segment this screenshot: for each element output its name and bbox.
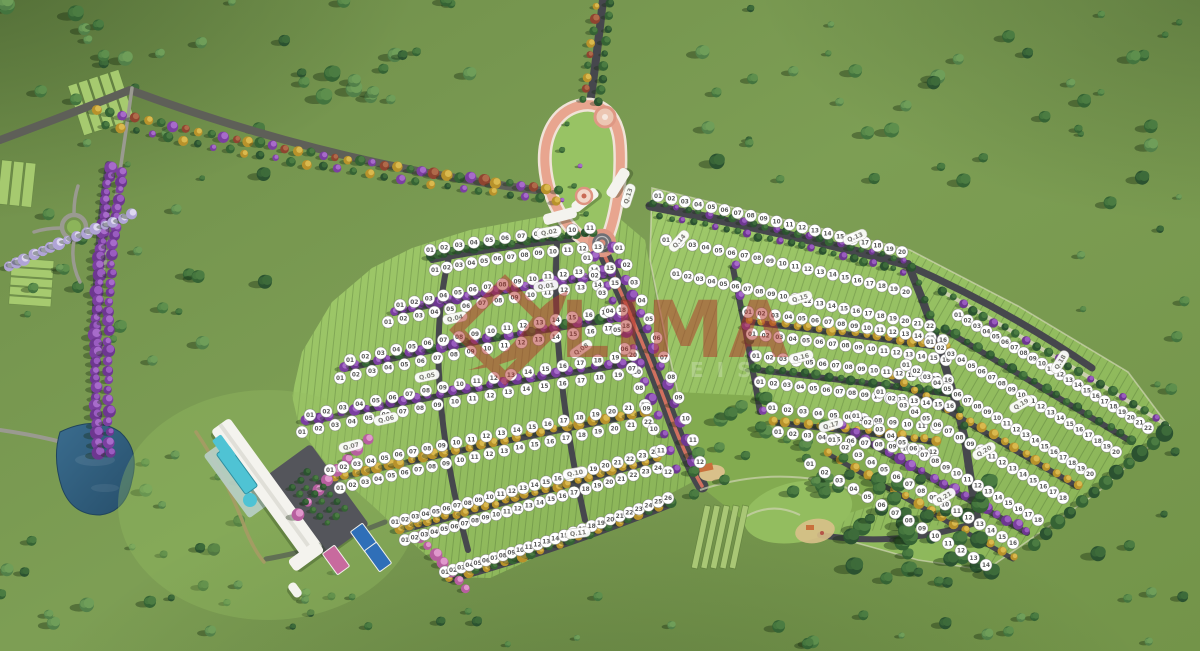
lot-badge: 10: [566, 224, 578, 236]
lot-badge: 20: [609, 422, 621, 434]
lot-badge: 10: [861, 322, 873, 334]
lot-badge: 01: [581, 252, 593, 264]
lot-badge: 02: [934, 342, 946, 354]
svg-text:03: 03: [923, 375, 931, 381]
lot-badge: 04: [346, 415, 358, 427]
svg-text:16: 16: [544, 422, 552, 428]
svg-text:08: 08: [875, 443, 883, 449]
svg-text:06: 06: [893, 475, 901, 481]
lot-badge: 15: [545, 493, 557, 505]
lot-badge: 03: [797, 406, 809, 418]
lot-badge: 15: [932, 398, 944, 410]
svg-text:01: 01: [902, 363, 910, 369]
svg-text:07: 07: [433, 356, 441, 362]
svg-text:05: 05: [898, 440, 906, 446]
lot-badge: 09: [848, 320, 860, 332]
lot-badge: 01: [304, 409, 316, 421]
lot-badge: 03: [453, 239, 465, 251]
lot-badge: 06: [725, 247, 737, 259]
lot-badge: 06: [440, 502, 452, 514]
svg-text:10: 10: [452, 440, 460, 446]
lot-badge: 10: [901, 418, 913, 430]
lot-badge: 06: [719, 204, 731, 216]
svg-text:06: 06: [720, 208, 728, 214]
svg-text:18: 18: [1068, 461, 1076, 467]
lot-badge: 06: [393, 449, 405, 461]
svg-text:20: 20: [901, 319, 909, 325]
svg-text:10: 10: [487, 329, 495, 335]
svg-text:01: 01: [346, 358, 354, 364]
lot-badge: 12: [662, 466, 674, 478]
lot-badge: 08: [903, 515, 915, 527]
svg-text:25: 25: [654, 500, 662, 506]
lot-badge: 05: [385, 470, 397, 482]
svg-text:05: 05: [454, 291, 462, 297]
lot-badge: 13: [1007, 462, 1019, 474]
lot-badge: 04: [909, 406, 921, 418]
svg-text:11: 11: [876, 328, 884, 334]
lot-badge: 10: [454, 378, 466, 390]
svg-text:16: 16: [1075, 428, 1083, 434]
lot-badge: 20: [896, 246, 908, 258]
svg-text:06: 06: [501, 236, 509, 242]
lot-badge: 11: [789, 260, 801, 272]
svg-text:07: 07: [734, 211, 742, 217]
lot-badge: 06: [499, 232, 511, 244]
swimming-pool: [243, 493, 257, 507]
lot-badge: 10: [951, 468, 963, 480]
svg-text:03: 03: [377, 351, 385, 357]
lot-badge: 03: [453, 259, 465, 271]
svg-text:05: 05: [806, 360, 814, 366]
lot-badge: 12: [483, 448, 495, 460]
svg-text:13: 13: [1022, 433, 1030, 439]
lot-badge: 05: [379, 452, 391, 464]
svg-text:01: 01: [828, 438, 836, 444]
lot-badge: 10: [648, 423, 660, 435]
lot-badge: 11: [961, 474, 973, 486]
svg-text:03: 03: [368, 369, 376, 375]
svg-text:16: 16: [559, 381, 567, 387]
svg-text:06: 06: [423, 341, 431, 347]
lot-badge: 15: [540, 476, 552, 488]
svg-text:01: 01: [806, 462, 814, 468]
road-spoke-n: [74, 186, 78, 213]
lot-badge: 01: [382, 316, 394, 328]
svg-text:16: 16: [852, 309, 860, 315]
lot-badge: 12: [484, 389, 496, 401]
svg-text:10: 10: [486, 495, 494, 501]
svg-text:04: 04: [814, 411, 822, 417]
lot-badge: 11: [465, 433, 477, 445]
lot-badge: 08: [518, 249, 530, 261]
svg-text:07: 07: [861, 441, 869, 447]
lot-badge: 14: [826, 300, 838, 312]
svg-text:13: 13: [594, 245, 602, 251]
svg-text:12: 12: [998, 460, 1006, 466]
lot-badge: 01: [424, 244, 436, 256]
svg-text:13: 13: [542, 539, 550, 545]
svg-text:06: 06: [978, 370, 986, 376]
lot-badge: 07: [431, 352, 443, 364]
svg-text:13: 13: [1047, 410, 1055, 416]
svg-text:14: 14: [1056, 416, 1064, 422]
svg-text:18: 18: [596, 376, 604, 382]
lot-badge: 14: [985, 525, 997, 537]
lot-badge: 22: [627, 469, 639, 481]
lot-badge: 01: [344, 354, 356, 366]
svg-text:11: 11: [503, 326, 511, 332]
lot-badge: 03: [686, 239, 698, 251]
svg-text:01: 01: [426, 248, 434, 254]
lot-badge: 11: [874, 324, 886, 336]
lot-badge: 17: [862, 308, 874, 320]
svg-text:07: 07: [824, 320, 832, 326]
lot-badge: 05: [483, 234, 495, 246]
lot-badge: 05: [363, 412, 375, 424]
lot-badge: 04: [885, 430, 897, 442]
lot-badge: 03: [802, 430, 814, 442]
svg-text:08: 08: [848, 391, 856, 397]
svg-text:06: 06: [493, 257, 501, 263]
svg-text:12: 12: [482, 434, 490, 440]
svg-text:04: 04: [384, 366, 392, 372]
svg-text:10: 10: [456, 382, 464, 388]
svg-text:09: 09: [438, 443, 446, 449]
lot-badge: 08: [840, 340, 852, 352]
svg-text:03: 03: [420, 533, 428, 539]
svg-text:09: 09: [674, 396, 682, 402]
lot-badge: 01: [900, 359, 912, 371]
svg-text:04: 04: [355, 402, 363, 408]
svg-text:09: 09: [942, 465, 950, 471]
svg-text:16: 16: [853, 278, 861, 284]
svg-text:07: 07: [399, 409, 407, 415]
lot-badge: 20: [599, 460, 611, 472]
svg-text:19: 19: [889, 317, 897, 323]
lot-badge: 10: [865, 343, 877, 355]
lot-badge: 07: [889, 507, 901, 519]
svg-text:05: 05: [922, 416, 930, 422]
svg-text:11: 11: [880, 349, 888, 355]
svg-text:07: 07: [439, 338, 447, 344]
svg-text:14: 14: [982, 563, 990, 569]
lot-badge: 05: [920, 412, 932, 424]
svg-text:18: 18: [578, 433, 586, 439]
svg-text:14: 14: [824, 231, 832, 237]
svg-text:02: 02: [841, 446, 849, 452]
lot-badge: 03: [852, 449, 864, 461]
svg-text:01: 01: [336, 486, 344, 492]
lot-badge: 06: [467, 284, 479, 296]
svg-text:10: 10: [682, 417, 690, 423]
svg-text:01: 01: [336, 376, 344, 382]
svg-text:09: 09: [888, 445, 896, 451]
svg-text:05: 05: [480, 259, 488, 265]
lot-badge: 13: [908, 395, 920, 407]
lot-badge: 20: [1084, 468, 1096, 480]
svg-text:12: 12: [895, 372, 903, 378]
svg-text:09: 09: [850, 324, 858, 330]
svg-text:06: 06: [442, 506, 450, 512]
svg-text:09: 09: [766, 259, 774, 265]
svg-text:10: 10: [863, 326, 871, 332]
svg-text:12: 12: [889, 330, 897, 336]
lot-badge: 08: [745, 210, 757, 222]
svg-text:15: 15: [528, 425, 536, 431]
svg-text:16: 16: [554, 477, 562, 483]
svg-text:18: 18: [576, 416, 584, 422]
svg-text:11: 11: [544, 275, 552, 281]
svg-text:21: 21: [914, 322, 922, 328]
clubhouse-complex: [118, 390, 418, 620]
lot-badge: 02: [346, 479, 358, 491]
lot-badge: 08: [421, 443, 433, 455]
svg-text:08: 08: [955, 436, 963, 442]
svg-text:12: 12: [514, 507, 522, 513]
lot-badge: 06: [386, 391, 398, 403]
svg-text:07: 07: [964, 399, 972, 405]
svg-text:12: 12: [696, 460, 704, 466]
svg-text:07: 07: [517, 234, 525, 240]
lot-badge: 17: [575, 374, 587, 386]
svg-text:09: 09: [433, 403, 441, 409]
svg-text:06: 06: [811, 318, 819, 324]
svg-text:17: 17: [562, 436, 570, 442]
svg-text:21: 21: [617, 477, 625, 483]
svg-text:15: 15: [930, 356, 938, 362]
lot-badge: 14: [920, 397, 932, 409]
svg-text:04: 04: [430, 530, 438, 536]
svg-text:05: 05: [381, 456, 389, 462]
svg-text:12: 12: [1037, 405, 1045, 411]
lot-badge: 17: [558, 415, 570, 427]
lot-badge: 08: [420, 385, 432, 397]
svg-text:16: 16: [1092, 394, 1100, 400]
svg-text:01: 01: [326, 468, 334, 474]
svg-text:02: 02: [410, 300, 418, 306]
svg-text:08: 08: [428, 464, 436, 470]
lot-badge: 10: [450, 436, 462, 448]
svg-text:02: 02: [963, 318, 971, 324]
lot-badge: 12: [996, 456, 1008, 468]
lot-badge: 09: [437, 381, 449, 393]
lot-badge: 13: [974, 518, 986, 530]
lot-badge: 16: [557, 490, 569, 502]
lot-badge: 02: [782, 404, 794, 416]
lot-badge: 05: [807, 382, 819, 394]
svg-text:23: 23: [635, 507, 643, 513]
svg-text:11: 11: [953, 509, 961, 515]
svg-text:17: 17: [861, 241, 869, 247]
svg-text:21: 21: [624, 406, 632, 412]
svg-text:19: 19: [1103, 444, 1111, 450]
svg-text:07: 07: [920, 453, 928, 459]
svg-text:03: 03: [411, 515, 419, 521]
svg-text:17: 17: [560, 419, 568, 425]
lot-badge: 20: [1110, 446, 1122, 458]
lot-badge: 19: [884, 243, 896, 255]
svg-text:02: 02: [821, 470, 829, 476]
svg-text:02: 02: [361, 355, 369, 361]
svg-text:05: 05: [707, 205, 715, 211]
svg-text:04: 04: [348, 419, 356, 425]
svg-text:03: 03: [361, 480, 369, 486]
lot-badge: 09: [436, 439, 448, 451]
svg-text:19: 19: [886, 247, 894, 253]
lot-badge: 19: [587, 463, 599, 475]
lot-badge: 05: [406, 340, 418, 352]
lot-badge: 15: [928, 352, 940, 364]
svg-text:20: 20: [605, 480, 613, 486]
lot-badge: 23: [640, 466, 652, 478]
lot-badge: 09: [964, 438, 976, 450]
svg-text:14: 14: [536, 500, 544, 506]
lot-badge: 13: [523, 499, 535, 511]
svg-text:09: 09: [642, 406, 650, 412]
lot-badge: 12: [972, 480, 984, 492]
lot-badge: 02: [768, 378, 780, 390]
svg-text:12: 12: [664, 470, 672, 476]
svg-text:15: 15: [841, 276, 849, 282]
svg-text:13: 13: [504, 390, 512, 396]
svg-text:01: 01: [662, 238, 670, 244]
lot-badge: 10: [680, 413, 692, 425]
svg-text:02: 02: [401, 517, 409, 523]
lot-badge: 02: [862, 417, 874, 429]
lot-badge: 04: [382, 362, 394, 374]
svg-text:20: 20: [1086, 472, 1094, 478]
svg-text:15: 15: [1004, 501, 1012, 507]
svg-text:12: 12: [964, 516, 972, 522]
lot-badge: 08: [426, 460, 438, 472]
svg-text:18: 18: [1094, 439, 1102, 445]
svg-text:05: 05: [714, 248, 722, 254]
svg-text:13: 13: [575, 270, 583, 276]
lot-badge: 03: [694, 273, 706, 285]
lot-badge: 20: [603, 476, 615, 488]
lot-badge: 12: [802, 263, 814, 275]
svg-text:01: 01: [391, 520, 399, 526]
svg-text:16: 16: [1014, 507, 1022, 513]
lot-badge: 13: [899, 328, 911, 340]
svg-text:08: 08: [917, 489, 925, 495]
svg-text:19: 19: [594, 430, 602, 436]
svg-text:14: 14: [922, 401, 930, 407]
lot-badge: 06: [415, 355, 427, 367]
lot-badge: 10: [547, 245, 559, 257]
svg-text:10: 10: [456, 458, 464, 464]
lot-badge: 10: [777, 258, 789, 270]
lot-badge: 04: [428, 306, 440, 318]
lot-badge: 12: [694, 456, 706, 468]
svg-text:07: 07: [453, 504, 461, 510]
svg-text:19: 19: [592, 412, 600, 418]
lot-badge: 16: [544, 435, 556, 447]
lot-badge: 05: [370, 395, 382, 407]
lot-badge: 21: [625, 419, 637, 431]
lot-badge: 07: [515, 230, 527, 242]
svg-text:12: 12: [486, 393, 494, 399]
lot-badge: 18: [574, 412, 586, 424]
lot-badge: 03: [781, 379, 793, 391]
svg-text:20: 20: [606, 517, 614, 523]
svg-text:20: 20: [601, 464, 609, 470]
svg-text:20: 20: [608, 409, 616, 415]
svg-text:17: 17: [1084, 433, 1092, 439]
svg-text:09: 09: [475, 498, 483, 504]
lot-badge: 15: [839, 272, 851, 284]
svg-text:13: 13: [500, 449, 508, 455]
svg-text:13: 13: [816, 270, 824, 276]
svg-text:10: 10: [568, 228, 576, 234]
lot-badge: 02: [819, 466, 831, 478]
svg-text:01: 01: [401, 538, 409, 544]
svg-text:09: 09: [1029, 356, 1037, 362]
lot-badge: 11: [687, 434, 699, 446]
lot-badge: 16: [850, 305, 862, 317]
svg-text:08: 08: [753, 256, 761, 262]
svg-text:08: 08: [520, 253, 528, 259]
lot-badge: 01: [652, 190, 664, 202]
svg-text:12: 12: [974, 484, 982, 490]
svg-text:02: 02: [440, 245, 448, 251]
svg-text:12: 12: [559, 272, 567, 278]
lot-badge: 18: [1057, 492, 1069, 504]
lot-badge: 05: [705, 201, 717, 213]
svg-text:02: 02: [399, 317, 407, 323]
lot-badge: 08: [633, 382, 645, 394]
svg-text:11: 11: [469, 396, 477, 402]
svg-text:10: 10: [779, 262, 787, 268]
svg-text:10: 10: [773, 220, 781, 226]
lot-badge: 12: [887, 326, 899, 338]
lot-badge: 12: [506, 485, 518, 497]
lot-badge: 03: [897, 399, 909, 411]
lot-badge: 01: [804, 458, 816, 470]
svg-text:05: 05: [440, 527, 448, 533]
lot-badge: 05: [800, 335, 812, 347]
lot-badge: 06: [399, 467, 411, 479]
svg-text:05: 05: [432, 509, 440, 515]
svg-text:07: 07: [832, 364, 840, 370]
lot-badge: 19: [590, 408, 602, 420]
lot-badge: 08: [835, 318, 847, 330]
lot-badge: 01: [924, 336, 936, 348]
svg-text:14: 14: [829, 273, 837, 279]
svg-text:10: 10: [650, 427, 658, 433]
svg-text:03: 03: [353, 462, 361, 468]
lot-badge: 10: [454, 454, 466, 466]
svg-text:02: 02: [769, 382, 777, 388]
lot-badge: 15: [526, 421, 538, 433]
lot-badge: 07: [918, 449, 930, 461]
lot-badge: 02: [787, 428, 799, 440]
svg-text:19: 19: [597, 521, 605, 527]
svg-text:20: 20: [898, 250, 906, 256]
svg-text:11: 11: [918, 424, 926, 430]
lot-badge: 14: [827, 269, 839, 281]
lot-badge: 11: [655, 444, 667, 456]
lot-badge: 18: [580, 483, 592, 495]
svg-text:14: 14: [828, 304, 836, 310]
lot-badge: 21: [612, 456, 624, 468]
lot-badge: 07: [412, 464, 424, 476]
lot-badge: 17: [864, 277, 876, 289]
svg-text:13: 13: [525, 503, 533, 509]
lot-badge: 06: [809, 314, 821, 326]
svg-text:16: 16: [558, 494, 566, 500]
